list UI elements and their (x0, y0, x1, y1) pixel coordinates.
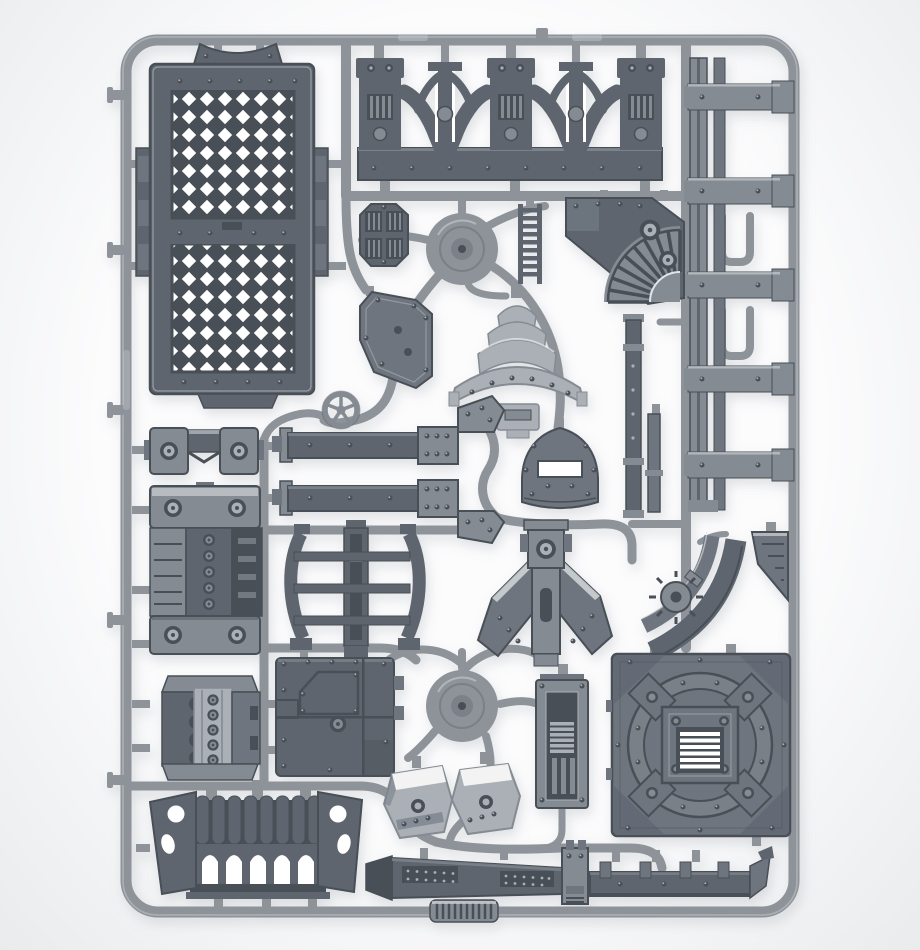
part-arcade (150, 792, 362, 899)
hub-bottom (426, 670, 498, 742)
part-vent-plate (360, 204, 408, 266)
part-platform (606, 654, 790, 836)
part-pipe-clamp (144, 428, 264, 474)
part-hood-right (452, 764, 520, 834)
part-girder-column (684, 58, 794, 512)
part-gusset-plate (360, 292, 432, 388)
part-hand-wheel (322, 391, 360, 429)
product-photo (0, 0, 920, 950)
part-storage-tank (150, 482, 262, 654)
part-ramp-wedge (752, 532, 788, 600)
part-ribbed-strip (430, 900, 498, 922)
part-support-columns (623, 314, 663, 518)
part-grating-panel (136, 44, 328, 408)
part-arch-wall (356, 58, 665, 180)
part-shield-hatch (522, 428, 598, 508)
part-engine-block (162, 676, 260, 780)
part-winged-bracket (478, 520, 612, 666)
part-curved-brace (290, 520, 420, 658)
hub-top (426, 213, 498, 285)
part-duct-segments (641, 532, 742, 658)
part-beam-upper (272, 396, 504, 464)
part-louver-quadrant (566, 198, 684, 304)
part-hood-left (384, 766, 452, 838)
sprue-photo (0, 0, 920, 950)
part-ladder (518, 204, 542, 284)
part-access-panel (276, 658, 404, 776)
part-control-cabinet (536, 674, 588, 808)
